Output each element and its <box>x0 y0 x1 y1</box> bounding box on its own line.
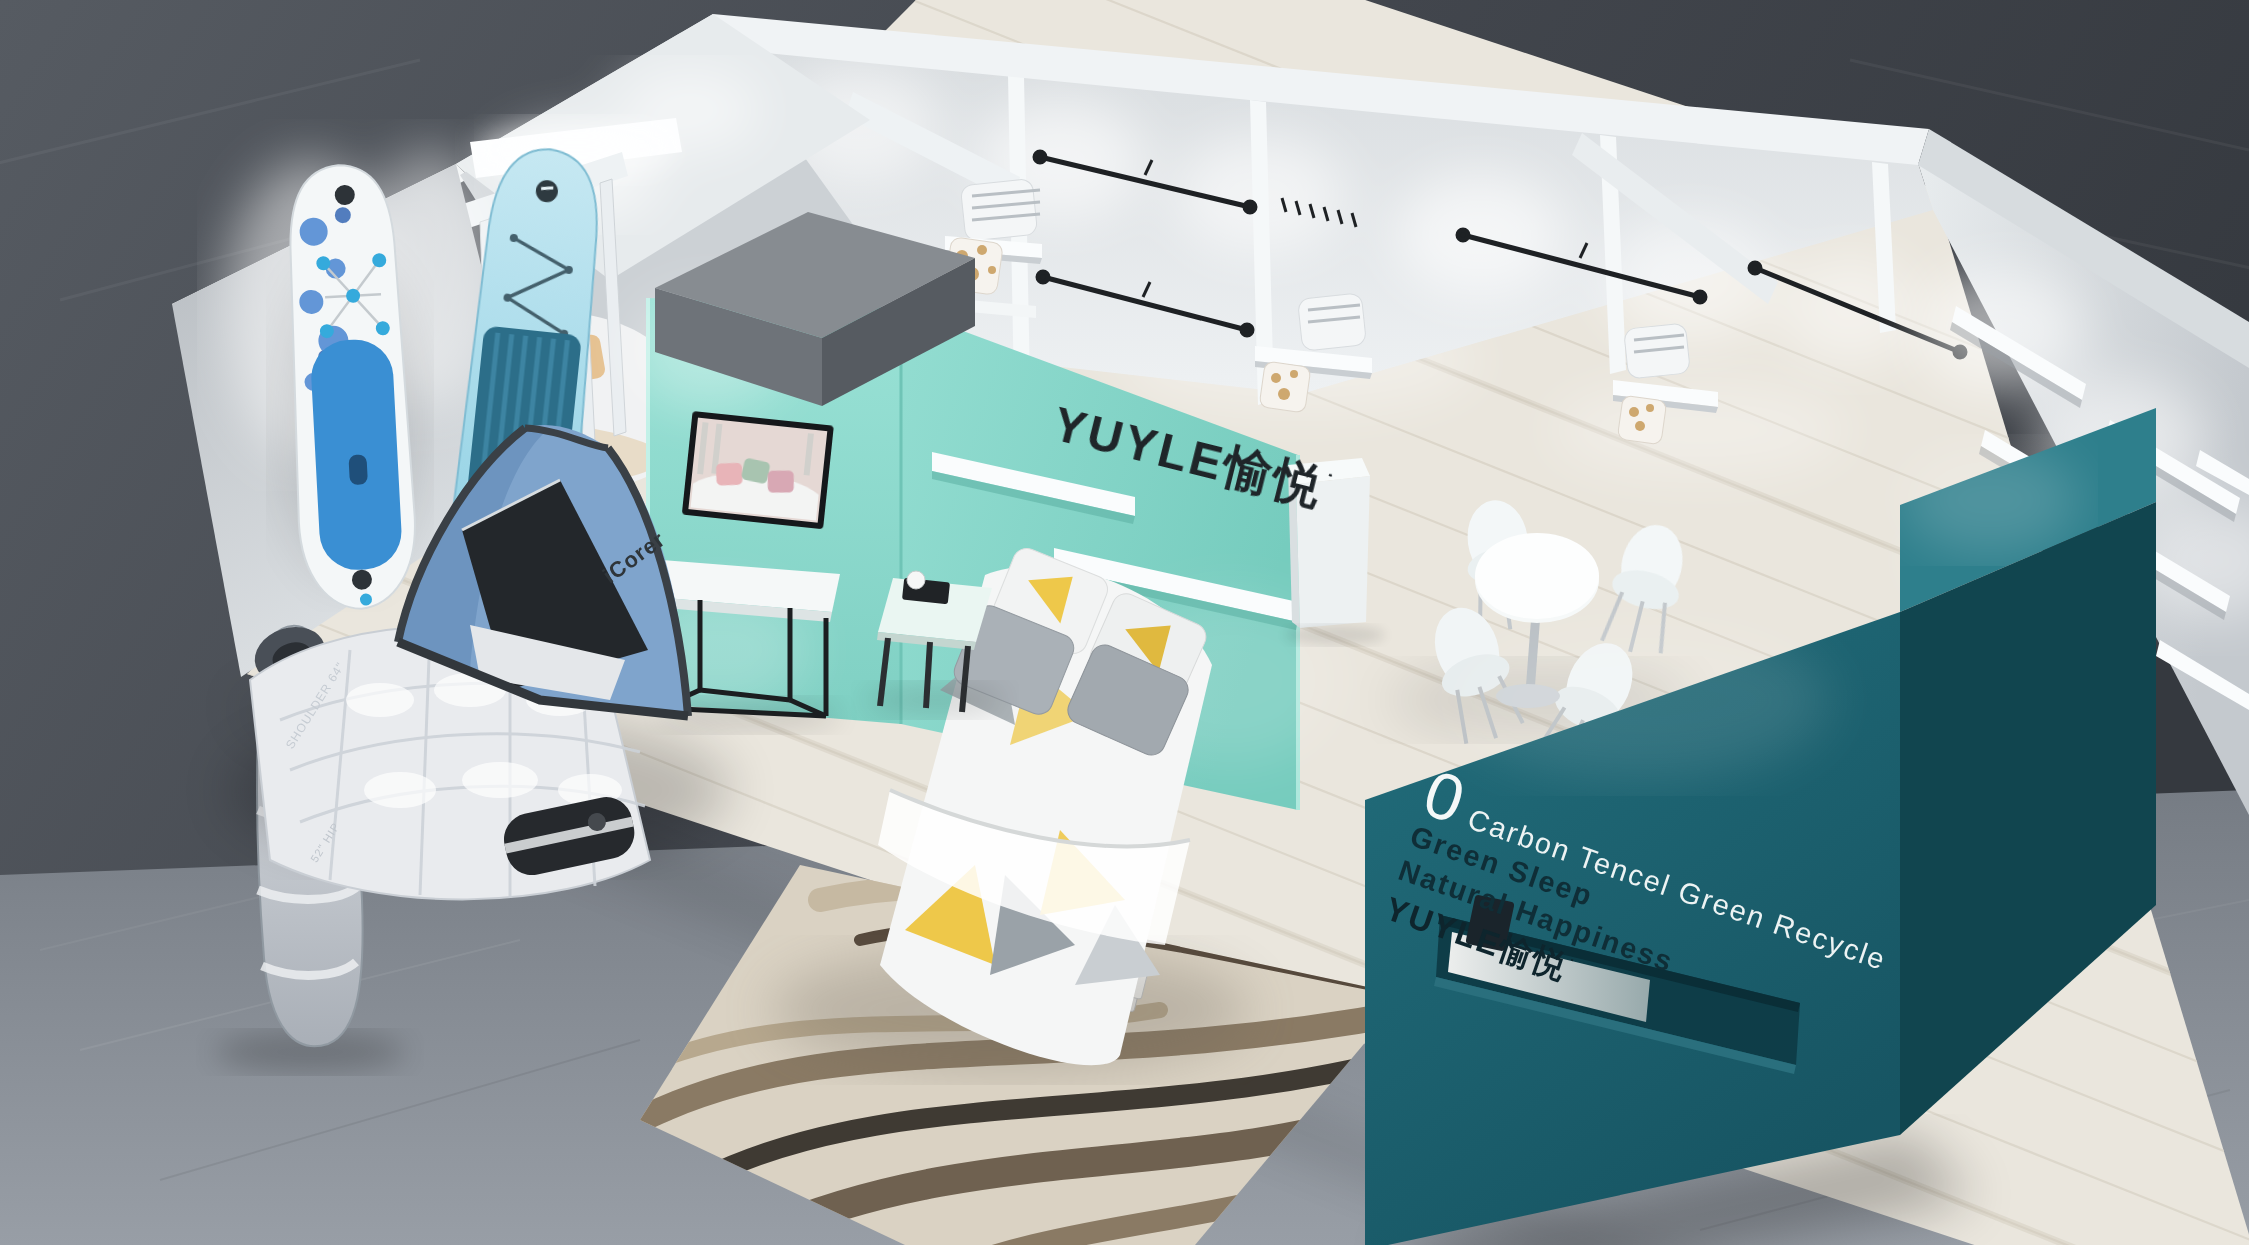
coffee-cup <box>907 571 925 589</box>
wall-tv <box>682 411 834 529</box>
booth-3d-scene <box>0 0 2249 1245</box>
booth-render-stage: YUYLE愉悦˙ 0 Carbon Tencel Green Recycle G… <box>0 0 2249 1245</box>
